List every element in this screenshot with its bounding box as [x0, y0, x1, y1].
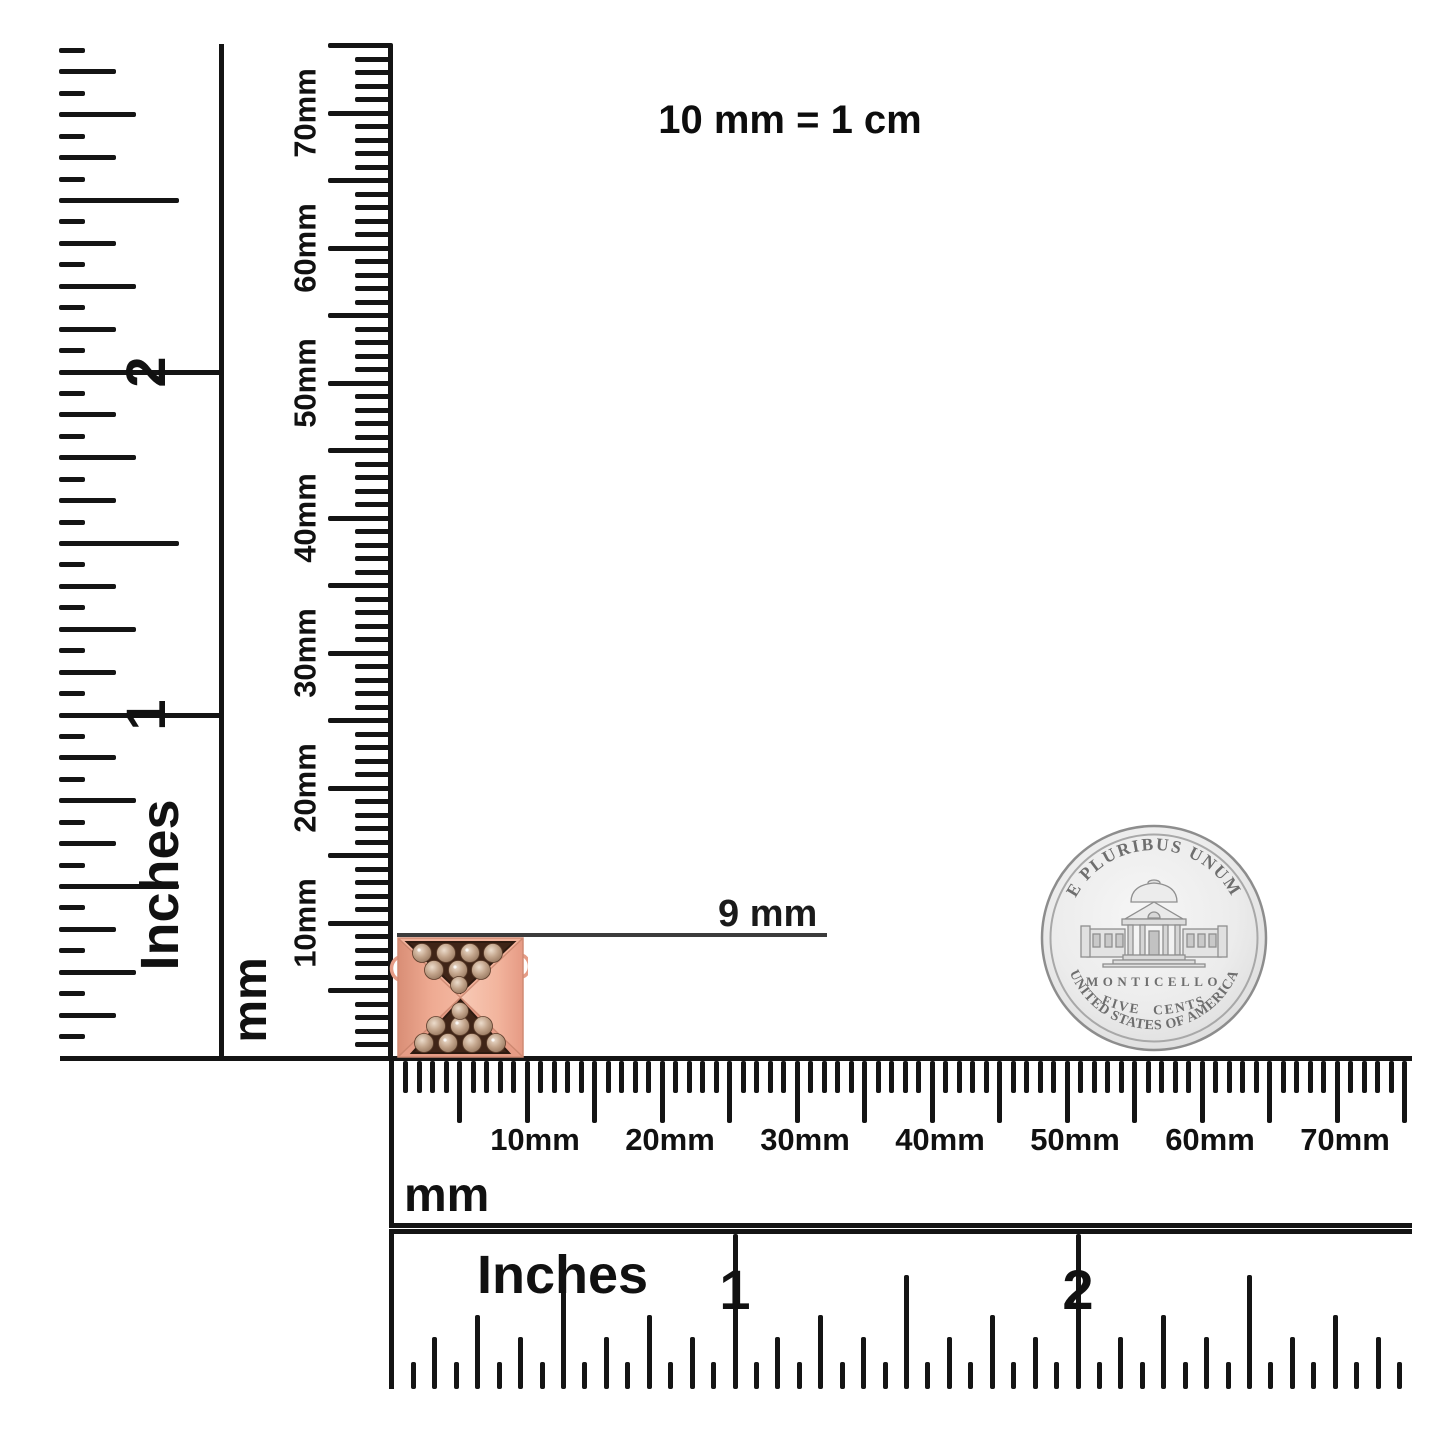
ruler-tick — [968, 1362, 973, 1389]
ruler-tick — [59, 970, 136, 975]
ruler-tick — [328, 718, 393, 723]
ruler-tick — [984, 1061, 989, 1093]
ruler-tick — [565, 1061, 570, 1093]
ruler-number: 40mm — [895, 1124, 985, 1155]
ruler-tick — [355, 894, 393, 899]
ruler-tick — [471, 1061, 476, 1093]
ruler-tick — [59, 91, 85, 96]
ruler-tick — [818, 1315, 823, 1389]
ruler-tick — [606, 1061, 611, 1093]
ruler-tick — [59, 327, 116, 332]
ruler-tick — [1065, 1061, 1070, 1123]
ruler-tick — [328, 246, 393, 251]
ruler-tick — [1051, 1061, 1056, 1093]
ruler-tick — [355, 624, 393, 629]
ruler-tick — [328, 111, 393, 116]
ruler-tick — [668, 1362, 673, 1389]
ruler-tick — [525, 1061, 530, 1123]
ruler-tick — [1097, 1362, 1102, 1389]
horizontal-mm-unit-label: mm — [404, 1172, 489, 1220]
ruler-tick — [328, 853, 393, 858]
ruler-tick — [355, 205, 393, 210]
ruler-tick — [835, 1061, 840, 1093]
ruler-tick — [355, 286, 393, 291]
ruler-tick — [355, 354, 393, 359]
ruler-tick — [355, 543, 393, 548]
ruler-tick — [754, 1061, 759, 1093]
ruler-tick — [59, 541, 179, 546]
pyramid-stud-earring-image — [386, 933, 528, 1059]
ruler-tick — [59, 927, 116, 932]
ruler-tick — [355, 367, 393, 372]
ruler-tick — [625, 1362, 630, 1389]
ruler-tick — [1161, 1315, 1166, 1389]
ruler-tick — [727, 1061, 732, 1123]
ruler-tick — [59, 284, 136, 289]
ruler-edge-line — [389, 1229, 394, 1389]
ruler-tick — [646, 1061, 651, 1093]
ruler-tick — [417, 1061, 422, 1093]
ruler-tick — [59, 1034, 85, 1039]
ruler-tick — [59, 948, 85, 953]
ruler-tick — [59, 562, 85, 567]
ruler-tick — [990, 1315, 995, 1389]
ruler-tick — [355, 597, 393, 602]
ruler-tick — [1038, 1061, 1043, 1093]
ruler-tick — [714, 1061, 719, 1093]
ruler-tick — [1054, 1362, 1059, 1389]
ruler-tick — [970, 1061, 975, 1093]
ruler-tick — [889, 1061, 894, 1093]
ruler-tick — [1308, 1061, 1313, 1093]
ruler-tick — [1146, 1061, 1151, 1093]
ruler-tick — [59, 262, 85, 267]
ruler-tick — [328, 921, 393, 926]
ruler-tick — [59, 820, 85, 825]
ruler-tick — [1397, 1362, 1402, 1389]
ruler-tick — [903, 1061, 908, 1093]
ruler-tick — [1335, 1061, 1340, 1123]
size-chart-canvas: 10 mm = 1 cm 12 10mm20mm30mm40mm50mm60mm… — [0, 0, 1445, 1445]
ruler-tick — [1118, 1337, 1123, 1389]
ruler-tick — [711, 1362, 716, 1389]
measurement-label: 9 mm — [718, 895, 817, 933]
ruler-tick — [849, 1061, 854, 1093]
ruler-tick — [59, 69, 116, 74]
ruler-tick — [355, 435, 393, 440]
ruler-tick — [59, 863, 85, 868]
ruler-tick — [538, 1061, 543, 1093]
ruler-tick — [619, 1061, 624, 1093]
ruler-tick — [59, 241, 116, 246]
ruler-tick — [328, 381, 393, 386]
ruler-tick — [59, 434, 85, 439]
ruler-tick — [768, 1061, 773, 1093]
ruler-tick — [355, 799, 393, 804]
ruler-number: 2 — [118, 356, 174, 387]
ruler-tick — [355, 772, 393, 777]
ruler-tick — [59, 627, 136, 632]
ruler-tick — [355, 637, 393, 642]
ruler-tick — [957, 1061, 962, 1093]
ruler-tick — [1362, 1061, 1367, 1093]
ruler-tick — [925, 1362, 930, 1389]
ruler-tick — [355, 340, 393, 345]
ruler-tick — [355, 57, 393, 62]
ruler-tick — [1092, 1061, 1097, 1093]
ruler-tick — [355, 273, 393, 278]
ruler-tick — [59, 48, 85, 53]
ruler-tick — [355, 570, 393, 575]
ruler-tick — [1105, 1061, 1110, 1093]
ruler-tick — [943, 1061, 948, 1093]
ruler-tick — [355, 97, 393, 102]
ruler-tick — [59, 734, 85, 739]
ruler-tick — [947, 1337, 952, 1389]
ruler-tick — [1348, 1061, 1353, 1093]
ruler-tick — [518, 1337, 523, 1389]
ruler-tick — [328, 786, 393, 791]
ruler-tick — [403, 1061, 408, 1093]
ruler-tick — [861, 1337, 866, 1389]
ruler-tick — [604, 1337, 609, 1389]
ruler-tick — [1389, 1061, 1394, 1093]
ruler-tick — [355, 813, 393, 818]
ruler-number: 60mm — [290, 203, 321, 293]
ruler-tick — [59, 455, 136, 460]
ruler-tick — [59, 1013, 116, 1018]
ruler-tick — [355, 327, 393, 332]
ruler-number: 20mm — [625, 1124, 715, 1155]
ruler-tick — [355, 867, 393, 872]
ruler-tick — [59, 991, 85, 996]
vertical-mm-unit-label: mm — [227, 957, 275, 1042]
ruler-tick — [355, 138, 393, 143]
ruler-tick — [328, 516, 393, 521]
ruler-tick — [511, 1061, 516, 1093]
ruler-tick — [840, 1362, 845, 1389]
ruler-tick — [355, 664, 393, 669]
ruler-tick — [355, 394, 393, 399]
ruler-tick — [328, 988, 393, 993]
ruler-tick — [754, 1362, 759, 1389]
ruler-tick — [808, 1061, 813, 1093]
ruler-edge-line — [60, 1056, 1412, 1061]
ruler-tick — [355, 759, 393, 764]
ruler-tick — [1226, 1362, 1231, 1389]
ruler-tick — [700, 1061, 705, 1093]
ruler-tick — [355, 556, 393, 561]
ruler-tick — [355, 880, 393, 885]
ruler-tick — [1119, 1061, 1124, 1093]
ruler-tick — [59, 520, 85, 525]
ruler-tick — [797, 1362, 802, 1389]
ruler-tick — [355, 705, 393, 710]
ruler-tick — [633, 1061, 638, 1093]
ruler-tick — [1078, 1061, 1083, 1093]
ruler-tick — [355, 691, 393, 696]
ruler-tick — [59, 155, 116, 160]
ruler-tick — [59, 412, 116, 417]
ruler-tick — [552, 1061, 557, 1093]
ruler-tick — [862, 1061, 867, 1123]
horizontal-inches-unit-label: Inches — [477, 1248, 648, 1302]
ruler-tick — [660, 1061, 665, 1123]
ruler-tick — [1333, 1315, 1338, 1389]
ruler-tick — [540, 1362, 545, 1389]
ruler-tick — [59, 498, 116, 503]
ruler-number: 60mm — [1165, 1124, 1255, 1155]
ruler-number: 1 — [719, 1262, 750, 1318]
ruler-tick — [1011, 1061, 1016, 1093]
ruler-edge-line — [389, 1223, 1412, 1228]
ruler-edge-line — [389, 1056, 394, 1228]
ruler-tick — [355, 259, 393, 264]
ruler-tick — [59, 670, 116, 675]
ruler-tick — [997, 1061, 1002, 1123]
ruler-tick — [1024, 1061, 1029, 1093]
ruler-tick — [1033, 1337, 1038, 1389]
ruler-tick — [498, 1061, 503, 1093]
ruler-tick — [59, 798, 136, 803]
ruler-tick — [1254, 1061, 1259, 1093]
ruler-tick — [59, 219, 85, 224]
ruler-tick — [775, 1337, 780, 1389]
ruler-tick — [59, 691, 85, 696]
ruler-tick — [1240, 1061, 1245, 1093]
ruler-tick — [1140, 1362, 1145, 1389]
ruler-tick — [1294, 1061, 1299, 1093]
ruler-tick — [59, 348, 85, 353]
ruler-tick — [1268, 1362, 1273, 1389]
ruler-tick — [444, 1061, 449, 1093]
ruler-tick — [432, 1337, 437, 1389]
ruler-number: 2 — [1062, 1262, 1093, 1318]
ruler-tick — [1354, 1362, 1359, 1389]
ruler-tick — [1311, 1362, 1316, 1389]
ruler-edge-line — [219, 44, 224, 1058]
ruler-tick — [355, 408, 393, 413]
vertical-inches-unit-label: Inches — [133, 799, 187, 970]
ruler-tick — [690, 1337, 695, 1389]
ruler-tick — [355, 124, 393, 129]
ruler-number: 10mm — [290, 878, 321, 968]
ruler-tick — [328, 43, 393, 48]
ruler-tick — [355, 907, 393, 912]
ruler-tick — [59, 584, 116, 589]
ruler-tick — [1204, 1337, 1209, 1389]
ruler-tick — [355, 232, 393, 237]
ruler-tick — [883, 1362, 888, 1389]
ruler-tick — [411, 1362, 416, 1389]
ruler-tick — [457, 1061, 462, 1123]
ruler-tick — [647, 1315, 652, 1389]
ruler-tick — [59, 391, 85, 396]
ruler-tick — [930, 1061, 935, 1123]
ruler-tick — [1267, 1061, 1272, 1123]
ruler-tick — [328, 651, 393, 656]
nickel-coin-image: E PLURIBUS UNUM MONTICELLO FIVE CENTS UN… — [1039, 823, 1269, 1053]
ruler-tick — [1011, 1362, 1016, 1389]
ruler-tick — [795, 1061, 800, 1123]
ruler-tick — [355, 610, 393, 615]
ruler-tick — [355, 84, 393, 89]
ruler-tick — [1213, 1061, 1218, 1093]
ruler-tick — [355, 732, 393, 737]
ruler-tick — [687, 1061, 692, 1093]
ruler-tick — [1281, 1061, 1286, 1093]
ruler-tick — [59, 755, 116, 760]
ruler-tick — [59, 305, 85, 310]
ruler-tick — [355, 151, 393, 156]
ruler-tick — [59, 177, 85, 182]
ruler-tick — [1247, 1275, 1252, 1389]
ruler-tick — [1183, 1362, 1188, 1389]
ruler-tick — [484, 1061, 489, 1093]
ruler-tick — [59, 777, 85, 782]
ruler-tick — [582, 1362, 587, 1389]
ruler-tick — [355, 475, 393, 480]
ruler-tick — [475, 1315, 480, 1389]
ruler-tick — [355, 462, 393, 467]
ruler-tick — [673, 1061, 678, 1093]
ruler-tick — [355, 70, 393, 75]
ruler-tick — [328, 313, 393, 318]
ruler-tick — [355, 529, 393, 534]
ruler-tick — [1200, 1061, 1205, 1123]
ruler-tick — [59, 198, 179, 203]
ruler-tick — [355, 421, 393, 426]
ruler-tick — [355, 489, 393, 494]
ruler-tick — [59, 112, 136, 117]
ruler-tick — [1321, 1061, 1326, 1093]
ruler-tick — [1290, 1337, 1295, 1389]
ruler-number: 30mm — [760, 1124, 850, 1155]
ruler-number: 40mm — [290, 473, 321, 563]
ruler-tick — [579, 1061, 584, 1093]
ruler-edge-line — [389, 1229, 1412, 1234]
ruler-tick — [497, 1362, 502, 1389]
ruler-tick — [904, 1275, 909, 1389]
ruler-tick — [592, 1061, 597, 1123]
ruler-tick — [1227, 1061, 1232, 1093]
ruler-number: 20mm — [290, 743, 321, 833]
ruler-tick — [876, 1061, 881, 1093]
ruler-tick — [328, 448, 393, 453]
ruler-number: 50mm — [1030, 1124, 1120, 1155]
ruler-tick — [355, 840, 393, 845]
ruler-number: 30mm — [290, 608, 321, 698]
ruler-tick — [1173, 1061, 1178, 1093]
ruler-tick — [822, 1061, 827, 1093]
ruler-tick — [59, 134, 85, 139]
ruler-tick — [355, 219, 393, 224]
ruler-tick — [1376, 1337, 1381, 1389]
ruler-tick — [328, 178, 393, 183]
ruler-number: 70mm — [290, 68, 321, 158]
ruler-number: 1 — [118, 699, 174, 730]
ruler-tick — [355, 192, 393, 197]
scale-note: 10 mm = 1 cm — [658, 100, 922, 140]
ruler-tick — [1132, 1061, 1137, 1123]
ruler-tick — [781, 1061, 786, 1093]
ruler-number: 10mm — [490, 1124, 580, 1155]
ruler-number: 50mm — [290, 338, 321, 428]
ruler-tick — [59, 841, 116, 846]
ruler-tick — [1375, 1061, 1380, 1093]
ruler-tick — [1402, 1061, 1407, 1123]
ruler-tick — [916, 1061, 921, 1093]
ruler-tick — [355, 826, 393, 831]
ruler-tick — [59, 605, 85, 610]
ruler-tick — [430, 1061, 435, 1093]
ruler-number: 70mm — [1300, 1124, 1390, 1155]
ruler-tick — [59, 477, 85, 482]
ruler-tick — [59, 905, 85, 910]
ruler-tick — [355, 678, 393, 683]
ruler-tick — [454, 1362, 459, 1389]
ruler-tick — [355, 745, 393, 750]
ruler-tick — [741, 1061, 746, 1093]
ruler-tick — [59, 648, 85, 653]
ruler-tick — [1186, 1061, 1191, 1093]
coin-building-text: MONTICELLO — [1086, 974, 1222, 989]
ruler-tick — [355, 502, 393, 507]
ruler-tick — [355, 300, 393, 305]
ruler-tick — [355, 165, 393, 170]
ruler-tick — [1159, 1061, 1164, 1093]
ruler-tick — [328, 583, 393, 588]
